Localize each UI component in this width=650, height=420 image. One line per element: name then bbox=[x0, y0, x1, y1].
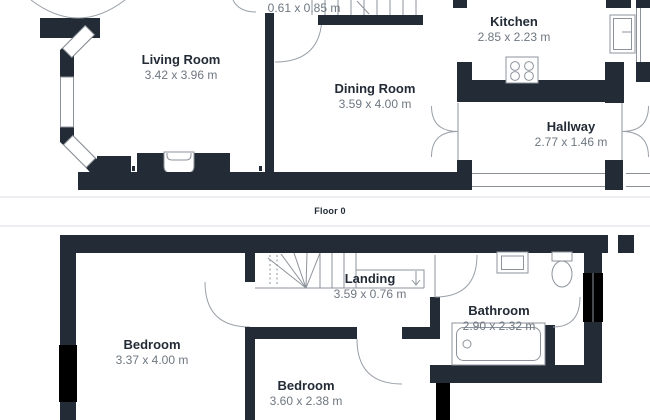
sink-icon bbox=[497, 252, 528, 273]
hallway-label: Hallway 2.77 x 1.46 m bbox=[501, 119, 641, 150]
bathroom-label: Bathroom 2.90 x 2.32 m bbox=[429, 303, 569, 334]
landing-label: Landing 3.59 x 0.76 m bbox=[300, 271, 440, 302]
bedroom-window-icon bbox=[59, 345, 77, 402]
room-dimensions: 0.61 x 0.85 m bbox=[244, 1, 364, 16]
room-name: Bedroom bbox=[236, 378, 376, 393]
room-dimensions: 3.59 x 0.76 m bbox=[300, 287, 440, 302]
room-dimensions: 2.90 x 2.32 m bbox=[429, 319, 569, 334]
door-swing-arc bbox=[275, 15, 322, 62]
toilet-icon bbox=[552, 252, 572, 287]
stove-icon bbox=[506, 57, 538, 83]
bedroom-front-label: Bedroom 3.37 x 4.00 m bbox=[82, 337, 222, 368]
fireplace-icon bbox=[164, 152, 194, 173]
bedroom-back-label: Bedroom 3.60 x 2.38 m bbox=[236, 378, 376, 409]
bay-window-icon bbox=[61, 26, 96, 168]
room-name: Kitchen bbox=[444, 14, 584, 29]
living-room-label: Living Room 3.42 x 3.96 m bbox=[106, 52, 256, 83]
room-name: Landing bbox=[300, 271, 440, 286]
section-divider bbox=[0, 196, 650, 198]
under-stairs-label: 0.61 x 0.85 m bbox=[244, 0, 364, 16]
door-swing-arc bbox=[432, 106, 459, 157]
floor0-bottom-wall bbox=[78, 172, 466, 190]
room-name: Dining Room bbox=[300, 81, 450, 96]
door-swing-arc bbox=[205, 282, 250, 327]
room-name: Hallway bbox=[501, 119, 641, 134]
room-name: Living Room bbox=[106, 52, 256, 67]
dining-room-label: Dining Room 3.59 x 4.00 m bbox=[300, 81, 450, 112]
door-swing-arc bbox=[435, 255, 477, 297]
room-name: Bedroom bbox=[82, 337, 222, 352]
section-divider bbox=[0, 225, 650, 227]
hallway-window-icon bbox=[472, 174, 650, 187]
floorplan-canvas: Living Room 3.42 x 3.96 m 0.61 x 0.85 m … bbox=[0, 0, 650, 420]
room-dimensions: 3.42 x 3.96 m bbox=[106, 68, 256, 83]
room-dimensions: 3.60 x 2.38 m bbox=[236, 394, 376, 409]
room-dimensions: 2.77 x 1.46 m bbox=[501, 135, 641, 150]
room-dimensions: 3.37 x 4.00 m bbox=[82, 353, 222, 368]
room-dimensions: 2.85 x 2.23 m bbox=[444, 30, 584, 45]
door-swing-arc bbox=[31, 0, 125, 18]
room-dimensions: 3.59 x 4.00 m bbox=[300, 97, 450, 112]
side-window-icon bbox=[637, 8, 641, 62]
bedroom-window-icon bbox=[436, 383, 450, 420]
room-name: Bathroom bbox=[429, 303, 569, 318]
boiler-icon bbox=[610, 15, 635, 53]
kitchen-label: Kitchen 2.85 x 2.23 m bbox=[444, 14, 584, 45]
floor0-caption: Floor 0 bbox=[270, 206, 390, 216]
